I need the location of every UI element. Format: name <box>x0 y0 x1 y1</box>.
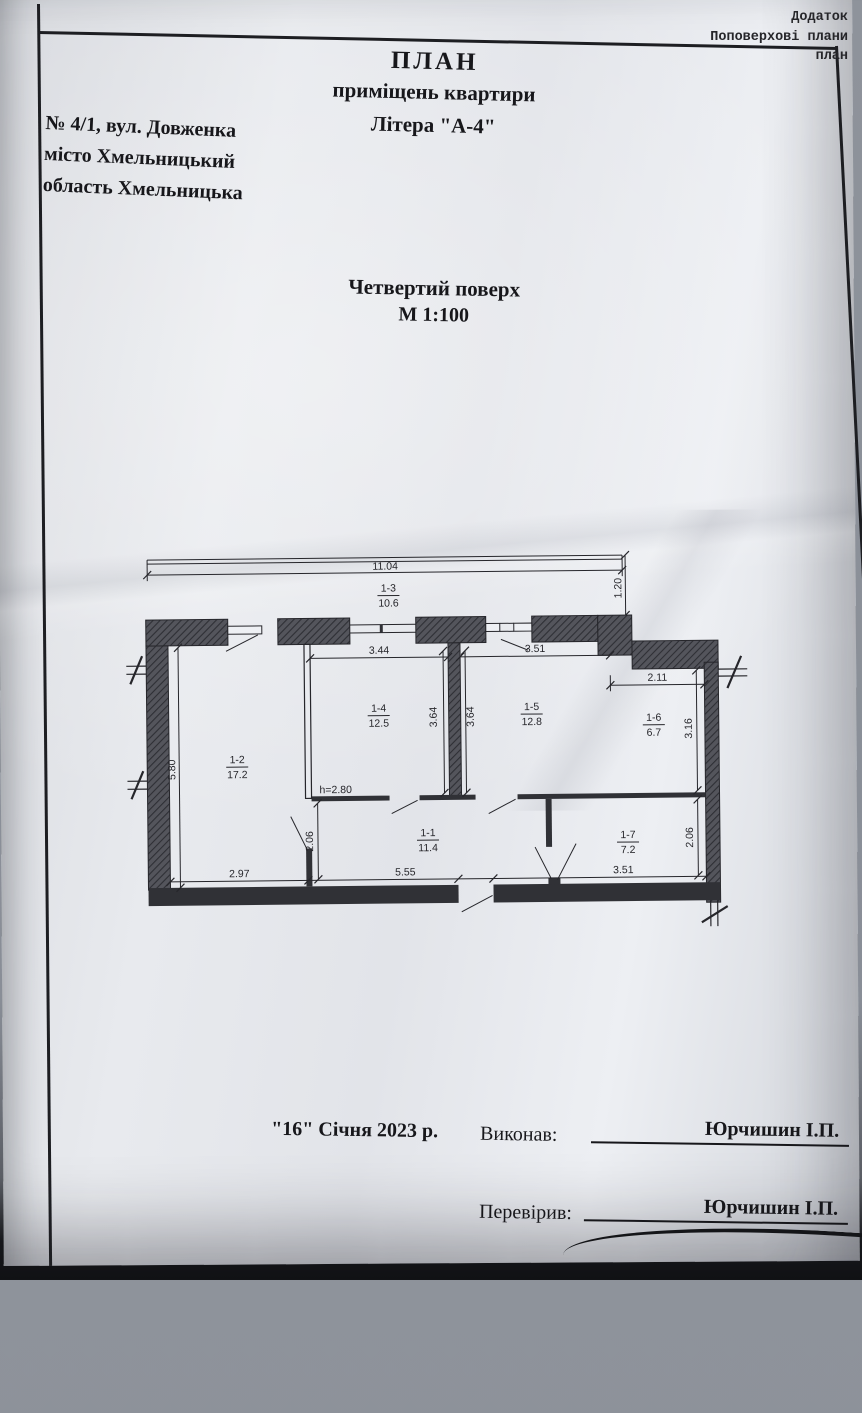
executed-by-label: Виконав: <box>480 1123 558 1147</box>
checked-by-name: Юрчишин І.П. <box>584 1194 848 1225</box>
executed-by-name: Юрчишин І.П. <box>591 1116 849 1147</box>
checked-by-label: Перевірив: <box>479 1201 572 1225</box>
signature-block: "16" Січня 2023 р. Виконав: Юрчишин І.П.… <box>0 0 862 1286</box>
document-date: "16" Січня 2023 р. <box>271 1118 438 1143</box>
